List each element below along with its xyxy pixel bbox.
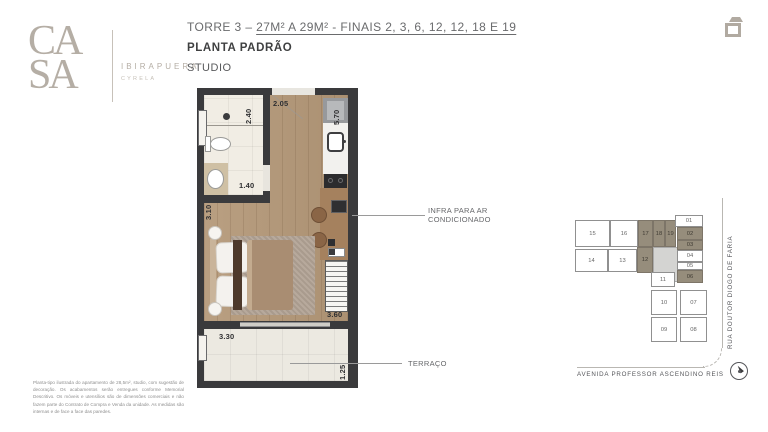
keyplan-unit-09: 09 bbox=[651, 317, 677, 342]
keyplan-unit-07: 07 bbox=[680, 290, 707, 315]
dim-bath-height: 2.40 bbox=[244, 98, 253, 124]
side-table bbox=[208, 226, 222, 240]
burner-icon bbox=[338, 178, 343, 183]
keyplan-unit-12: 12 bbox=[637, 247, 653, 273]
keyplan-unit-18: 18 bbox=[653, 220, 665, 247]
shower-head-icon bbox=[223, 113, 230, 120]
street-line-right bbox=[722, 198, 723, 348]
dim-entry: 2.05 bbox=[273, 99, 288, 108]
logo-letters-bottom: SA bbox=[28, 58, 80, 92]
monument-icon bbox=[725, 17, 743, 37]
monument-body-icon bbox=[725, 23, 741, 37]
faucet-icon bbox=[343, 140, 346, 143]
keyplan-unit-05: 05 bbox=[677, 262, 703, 270]
street-line-bottom bbox=[577, 367, 705, 368]
tower-title: TORRE 3 – 27M² A 29M² - FINAIS 2, 3, 6, … bbox=[187, 20, 516, 34]
infra-callout-line2: CONDICIONADO bbox=[428, 215, 491, 224]
casa-logo: CA SA bbox=[28, 24, 80, 92]
keyplan-unit-13: 13 bbox=[608, 249, 637, 272]
street-name-bottom: AVENIDA PROFESSOR ASCENDINO REIS bbox=[577, 371, 724, 378]
bed-duvet bbox=[247, 240, 293, 310]
infra-callout-line1: INFRA PARA AR bbox=[428, 206, 491, 215]
sliding-door bbox=[240, 322, 330, 327]
keyplan-unit-04: 04 bbox=[677, 250, 703, 262]
dim-room-width: 3.60 bbox=[327, 310, 342, 319]
logo-developer-name: CYRELA bbox=[121, 76, 156, 82]
keyplan-unit-02: 02 bbox=[677, 227, 703, 240]
ac-infra-hatch bbox=[325, 260, 348, 312]
side-table bbox=[208, 302, 222, 316]
unit-type-title: STUDIO bbox=[187, 62, 232, 74]
logo-letters: CA SA bbox=[28, 24, 80, 92]
keyplan-unit-08: 08 bbox=[680, 317, 707, 342]
floorplan: 2.05 2.40 5.70 1.40 3.10 3.60 3.30 1.25 bbox=[197, 88, 358, 388]
shower-glass-line bbox=[204, 125, 263, 126]
terrace-leader-line bbox=[290, 363, 402, 364]
keyplan-unit-10: 10 bbox=[651, 290, 677, 315]
keyplan: 15 16 17 18 19 14 13 12 01 02 03 04 05 0… bbox=[573, 213, 723, 373]
keyplan-unit-11: 11 bbox=[651, 272, 675, 287]
toilet bbox=[210, 137, 231, 151]
tv bbox=[331, 200, 347, 213]
dim-terrace-width: 3.30 bbox=[219, 332, 234, 341]
keyplan-unit-14: 14 bbox=[575, 249, 608, 272]
street-name-right: RUA DOUTOR DIOGO DE FARIA bbox=[727, 207, 734, 349]
keyplan-unit-01: 01 bbox=[675, 215, 703, 227]
keyplan-unit-15: 15 bbox=[575, 220, 610, 247]
burner-icon bbox=[328, 178, 333, 183]
vanity-sink bbox=[207, 169, 224, 189]
infra-leader-line bbox=[352, 215, 425, 216]
brochure-page: CA SA IBIRAPUERA CYRELA TORRE 3 – 27M² A… bbox=[0, 0, 768, 432]
wall-niche-terrace bbox=[198, 335, 207, 361]
keyplan-unit-06: 06 bbox=[677, 270, 703, 283]
monument-roof-icon bbox=[729, 17, 743, 22]
compass-center-icon bbox=[738, 370, 741, 373]
keyplan-unit-17: 17 bbox=[638, 220, 653, 247]
stool bbox=[311, 207, 327, 223]
dim-kitchen-height: 5.70 bbox=[332, 99, 341, 125]
dim-bath-width: 1.40 bbox=[239, 181, 254, 190]
kitchen-sink bbox=[327, 132, 344, 152]
disclaimer-text: Planta-tipo ilustrada do apartamento de … bbox=[33, 379, 184, 415]
side-cabinet-detail bbox=[329, 249, 335, 255]
entry-opening bbox=[272, 88, 315, 95]
ac-point bbox=[328, 239, 335, 246]
dim-room-left: 3.10 bbox=[204, 194, 213, 220]
bed-runner bbox=[233, 240, 242, 310]
bathroom-door-opening bbox=[263, 165, 270, 191]
keyplan-unit-03: 03 bbox=[677, 240, 703, 250]
compass-icon bbox=[730, 362, 748, 380]
plan-type-title: PLANTA PADRÃO bbox=[187, 42, 292, 54]
terrace-callout: TERRAÇO bbox=[408, 359, 447, 368]
logo-divider bbox=[112, 30, 113, 102]
dim-terrace-depth: 1.25 bbox=[338, 354, 347, 380]
tower-title-prefix: TORRE 3 – bbox=[187, 20, 256, 34]
infra-callout: INFRA PARA AR CONDICIONADO bbox=[428, 206, 491, 224]
keyplan-unit-16: 16 bbox=[610, 220, 638, 247]
tower-title-finais: 27M² A 29M² - FINAIS 2, 3, 6, 12, 12, 18… bbox=[256, 20, 516, 34]
